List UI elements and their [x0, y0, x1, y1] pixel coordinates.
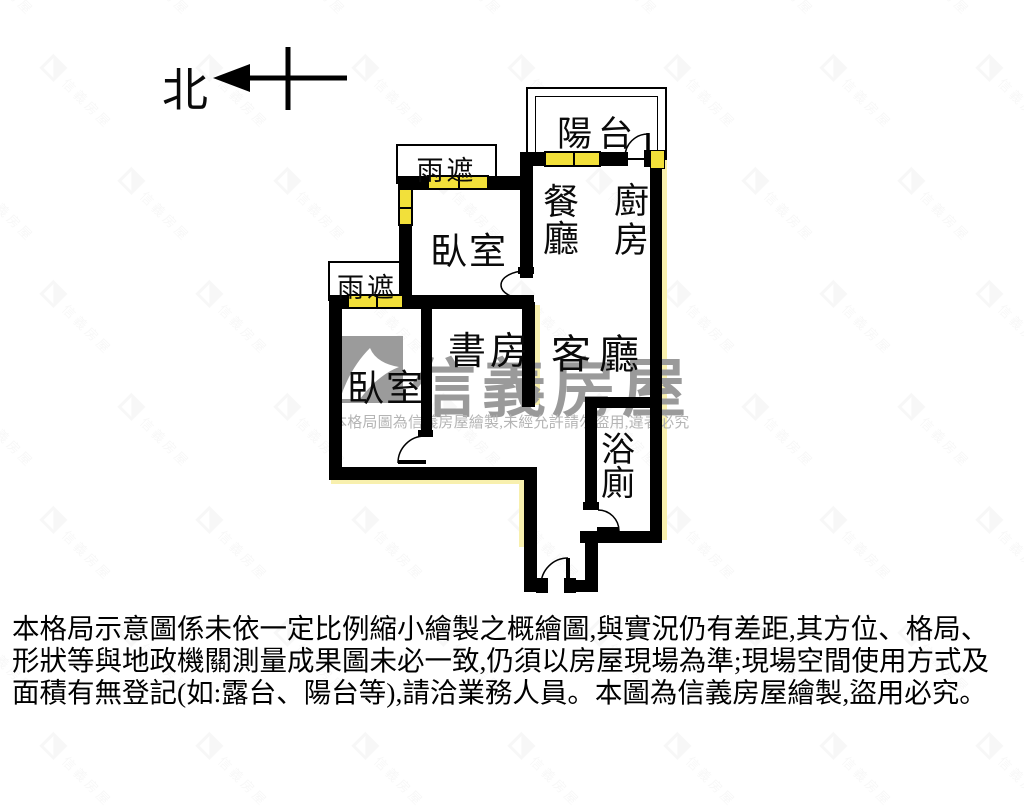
watermark-tile-text: 信義房屋 — [59, 525, 118, 584]
watermark-tile-logo — [273, 167, 301, 195]
watermark-tile-logo — [585, 167, 613, 195]
window-bedroom1-side — [398, 188, 413, 226]
watermark-tile: 信義房屋 — [741, 393, 819, 471]
watermark-tile-text: 信義房屋 — [683, 299, 742, 358]
watermark-tile-text: 信義房屋 — [215, 299, 274, 358]
watermark-tile-logo — [663, 732, 691, 760]
watermark-tile-text: 信義房屋 — [761, 186, 820, 245]
watermark-tile: 信義房屋 — [975, 732, 1024, 810]
wall-bathroom-left — [585, 397, 597, 509]
watermark-tile-text: 信義房屋 — [683, 73, 742, 132]
watermark-tile-logo — [39, 506, 67, 534]
watermark-tile-logo — [351, 732, 379, 760]
watermark-tile-logo — [741, 167, 769, 195]
watermark-tile: 信義房屋 — [897, 0, 975, 19]
watermark-tile-text: 信義房屋 — [761, 0, 820, 19]
watermark-tile-text: 信義房屋 — [371, 751, 430, 810]
watermark-tile-logo — [663, 280, 691, 308]
watermark-tile: 信義房屋 — [975, 506, 1024, 584]
watermark-tile-text: 信義房屋 — [59, 299, 118, 358]
watermark-tile: 信義房屋 — [0, 0, 40, 19]
watermark-tile-text: 信義房屋 — [0, 0, 39, 19]
watermark-tile: 信義房屋 — [117, 393, 195, 471]
watermark-tile: 信義房屋 — [663, 54, 741, 132]
watermark-tile-logo — [117, 167, 145, 195]
jamb-bathroom-door — [583, 502, 599, 510]
disclaimer-line-3: 面積有無登記(如:露台、陽台等),請洽業務人員。本圖為信義房屋繪製,盜用必究。 — [12, 677, 989, 709]
watermark-tile-logo — [663, 54, 691, 82]
watermark-tile: 信義房屋 — [39, 506, 117, 584]
watermark-tile-text: 信義房屋 — [371, 525, 430, 584]
watermark-tile-logo — [975, 732, 1003, 760]
jamb-bedroom2-door — [418, 430, 433, 437]
watermark-tile-text: 信義房屋 — [995, 73, 1024, 132]
watermark-tile: 信義房屋 — [663, 506, 741, 584]
watermark-tile-logo — [39, 732, 67, 760]
watermark-tile: 信義房屋 — [741, 0, 819, 19]
watermark-tile-text: 信義房屋 — [683, 751, 742, 810]
watermark-tile-logo — [195, 732, 223, 760]
watermark-tile: 信義房屋 — [975, 54, 1024, 132]
watermark-tile: 信義房屋 — [819, 54, 897, 132]
room-label-balcony: 陽台 — [557, 106, 639, 157]
watermark-tile: 信義房屋 — [819, 506, 897, 584]
watermark-tile-text: 信義房屋 — [839, 299, 898, 358]
watermark-tile-text: 信義房屋 — [995, 299, 1024, 358]
watermark-tile-text: 信義房屋 — [137, 0, 196, 19]
room-label-dining: 餐廳 — [542, 184, 580, 257]
watermark-tile-logo — [819, 54, 847, 82]
wall-right-exterior — [650, 156, 662, 543]
watermark-tile-text: 信義房屋 — [683, 525, 742, 584]
room-label-bedroom2: 臥室 — [347, 358, 425, 412]
watermark-tile: 信義房屋 — [273, 167, 351, 245]
watermark-tile: 信義房屋 — [507, 732, 585, 810]
room-label-kitchen: 廚房 — [613, 182, 650, 260]
jamb-bedroom1-door — [518, 267, 534, 274]
watermark-tile-text: 信義房屋 — [293, 186, 352, 245]
watermark-tile-logo — [975, 280, 1003, 308]
watermark-tile: 信義房屋 — [429, 0, 507, 19]
watermark-tile-logo — [663, 506, 691, 534]
edge-highlight-right — [662, 160, 667, 540]
north-label: 北 — [162, 54, 208, 120]
watermark-tile-text: 信義房屋 — [449, 0, 508, 19]
watermark-tile: 信義房屋 — [819, 732, 897, 810]
watermark-tile-logo — [351, 54, 379, 82]
watermark-tile-text: 信義房屋 — [0, 412, 39, 471]
wall-end-yellow-block — [650, 150, 665, 169]
watermark-tile-logo — [273, 393, 301, 421]
watermark-tile-logo — [507, 732, 535, 760]
watermark-tile: 信義房屋 — [741, 167, 819, 245]
watermark-tile: 信義房屋 — [39, 732, 117, 810]
watermark-tile-text: 信義房屋 — [293, 0, 352, 19]
watermark-tile-logo — [819, 732, 847, 760]
watermark-tile-text: 信義房屋 — [605, 0, 664, 19]
watermark-tile-logo — [39, 54, 67, 82]
wall-left-exterior — [329, 299, 342, 480]
watermark-tile-logo — [117, 393, 145, 421]
watermark-tile-text: 信義房屋 — [995, 751, 1024, 810]
watermark-tile-logo — [975, 54, 1003, 82]
watermark-tile-text: 信義房屋 — [137, 186, 196, 245]
watermark-tile-text: 信義房屋 — [761, 412, 820, 471]
watermark-tile-text: 信義房屋 — [371, 73, 430, 132]
watermark-tile: 信義房屋 — [351, 54, 429, 132]
room-label-canopy-top: 雨遮 — [396, 149, 497, 188]
watermark-tile-logo — [819, 506, 847, 534]
edge-highlight-center — [535, 305, 540, 405]
watermark-tile: 信義房屋 — [195, 280, 273, 358]
watermark-tile-text: 信義房屋 — [917, 0, 976, 19]
north-arrow — [213, 47, 347, 110]
watermark-tile-logo — [351, 506, 379, 534]
watermark-tile-text: 信義房屋 — [293, 412, 352, 471]
watermark-tile: 信義房屋 — [819, 280, 897, 358]
watermark-tile: 信義房屋 — [897, 393, 975, 471]
room-label-bedroom1: 臥室 — [430, 221, 508, 275]
watermark-tile-text: 信義房屋 — [137, 412, 196, 471]
watermark-tile-text: 信義房屋 — [215, 751, 274, 810]
room-label-bathroom: 浴廁 — [600, 434, 636, 502]
room-label-study: 書房 — [448, 320, 532, 375]
watermark-tile-text: 信義房屋 — [449, 412, 508, 471]
watermark-tile-text: 信義房屋 — [839, 73, 898, 132]
watermark-tile: 信義房屋 — [585, 0, 663, 19]
watermark-tile: 信義房屋 — [897, 167, 975, 245]
watermark-tile: 信義房屋 — [429, 393, 507, 471]
bedroom2-door — [398, 436, 426, 463]
watermark-tile-text: 信義房屋 — [0, 186, 39, 245]
watermark-tile: 信義房屋 — [117, 167, 195, 245]
watermark-tile-text: 信義房屋 — [215, 73, 274, 132]
jamb-entry-left — [536, 578, 548, 593]
watermark-tile-logo — [429, 393, 457, 421]
watermark-tile: 信義房屋 — [273, 0, 351, 19]
disclaimer-line-2: 形狀等與地政機關測量成果圖未必一致,仍須以房屋現場為準;現場空間使用方式及 — [12, 645, 989, 677]
watermark-tile-text: 信義房屋 — [59, 751, 118, 810]
edge-highlight-bottom — [331, 480, 532, 484]
watermark-notice-text: 本格局圖為信義房屋繪製,未經允許請勿盜用,違者必究 — [332, 411, 690, 432]
watermark-tile-logo — [39, 280, 67, 308]
watermark-tile: 信義房屋 — [663, 280, 741, 358]
watermark-tile: 信義房屋 — [0, 393, 40, 471]
watermark-tile-text: 信義房屋 — [917, 186, 976, 245]
watermark-tile-logo — [741, 393, 769, 421]
disclaimer-text: 本格局示意圖係未依一定比例縮小繪製之概繪圖,與實況仍有差距,其方位、格局、 形狀… — [12, 613, 989, 709]
disclaimer-line-1: 本格局示意圖係未依一定比例縮小繪製之概繪圖,與實況仍有差距,其方位、格局、 — [12, 613, 989, 645]
watermark-tile-logo — [507, 54, 535, 82]
watermark-tile-text: 信義房屋 — [59, 73, 118, 132]
watermark-tile-text: 信義房屋 — [215, 525, 274, 584]
watermark-tile-logo — [819, 280, 847, 308]
watermark-tile: 信義房屋 — [351, 506, 429, 584]
watermark-tile: 信義房屋 — [39, 280, 117, 358]
watermark-tile-logo — [195, 280, 223, 308]
room-label-living: 客廳 — [551, 322, 647, 380]
wall-hall-left — [524, 467, 537, 592]
watermark-tile-text: 信義房屋 — [527, 751, 586, 810]
watermark-tile-text: 信義房屋 — [839, 525, 898, 584]
jamb-entry-right — [564, 578, 576, 593]
watermark-tile-logo — [897, 167, 925, 195]
watermark-tile-text: 信義房屋 — [839, 751, 898, 810]
watermark-tile: 信義房屋 — [351, 732, 429, 810]
watermark-tile: 信義房屋 — [117, 0, 195, 19]
watermark-tile-logo — [897, 393, 925, 421]
bathroom-door — [597, 510, 619, 531]
wall-bedroom1-right — [520, 152, 533, 278]
watermark-tile-text: 信義房屋 — [917, 412, 976, 471]
watermark-tile: 信義房屋 — [195, 506, 273, 584]
watermark-tile: 信義房屋 — [0, 167, 40, 245]
watermark-tile: 信義房屋 — [39, 54, 117, 132]
watermark-tile-logo — [975, 506, 1003, 534]
watermark-tile: 信義房屋 — [195, 732, 273, 810]
wall-bottom-left — [329, 467, 536, 480]
watermark-tile-logo — [195, 506, 223, 534]
watermark-tile: 信義房屋 — [663, 732, 741, 810]
watermark-tile-text: 信義房屋 — [995, 525, 1024, 584]
room-label-canopy-left: 雨遮 — [328, 266, 406, 305]
watermark-tile: 信義房屋 — [975, 280, 1024, 358]
